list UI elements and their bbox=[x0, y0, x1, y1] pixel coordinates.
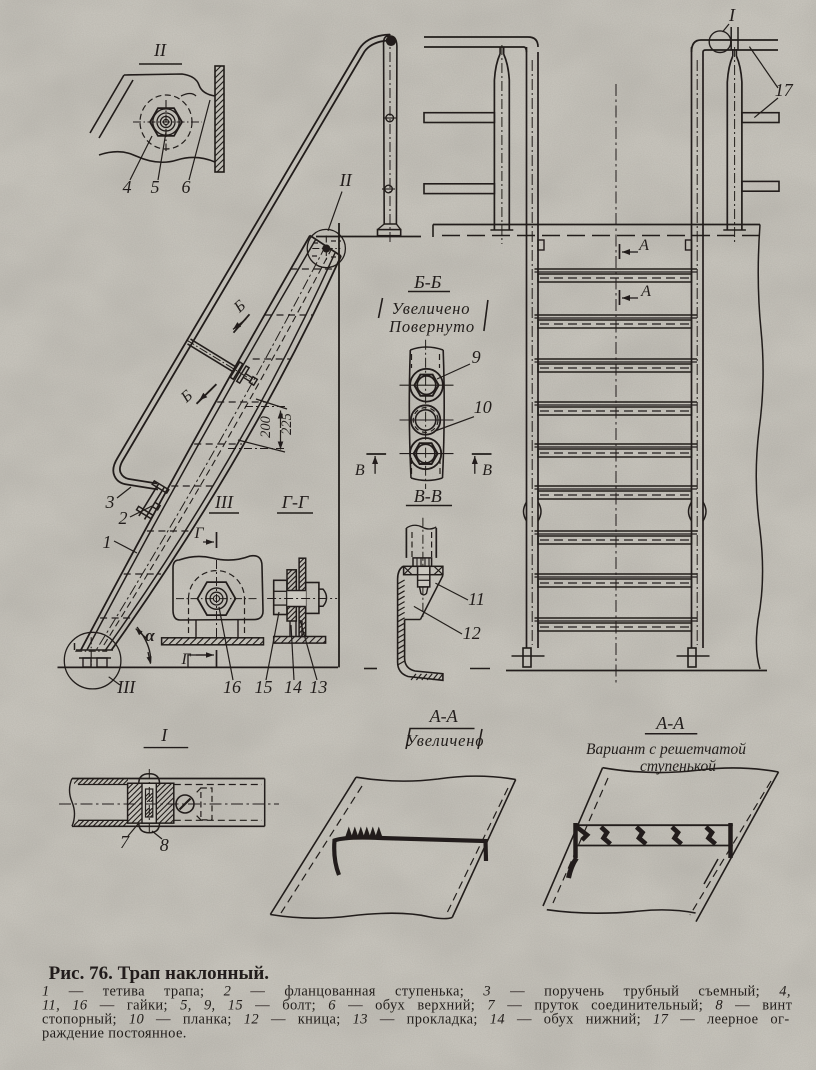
svg-text:А-А: А-А bbox=[429, 706, 459, 726]
svg-text:10: 10 bbox=[474, 397, 492, 417]
svg-text:I: I bbox=[728, 5, 736, 25]
svg-text:Г-Г: Г-Г bbox=[281, 492, 309, 512]
svg-text:12: 12 bbox=[463, 623, 481, 643]
svg-text:II: II bbox=[339, 170, 353, 190]
svg-text:А-А: А-А bbox=[655, 713, 685, 733]
svg-text:Г: Г bbox=[193, 525, 204, 542]
svg-text:1: 1 bbox=[103, 532, 112, 552]
svg-text:11: 11 bbox=[468, 589, 485, 609]
svg-text:Рис. 76. Трап наклонный.: Рис. 76. Трап наклонный. bbox=[49, 963, 269, 984]
svg-text:2: 2 bbox=[119, 508, 128, 528]
svg-text:Повернуто: Повернуто bbox=[388, 317, 475, 336]
svg-text:14: 14 bbox=[284, 677, 302, 697]
svg-text:Увеличено: Увеличено bbox=[392, 299, 471, 318]
svg-text:9: 9 bbox=[472, 347, 481, 367]
svg-text:В: В bbox=[482, 462, 492, 479]
svg-text:Г: Г bbox=[180, 651, 191, 668]
svg-text:II: II bbox=[153, 40, 167, 60]
svg-text:15: 15 bbox=[255, 677, 273, 697]
svg-text:Увеличено: Увеличено bbox=[406, 731, 485, 750]
svg-text:α: α bbox=[145, 626, 155, 645]
svg-text:III: III bbox=[214, 492, 234, 512]
svg-text:200: 200 bbox=[258, 415, 274, 438]
svg-text:225: 225 bbox=[279, 413, 295, 435]
svg-text:3: 3 bbox=[105, 492, 115, 512]
svg-text:А: А bbox=[638, 237, 649, 254]
svg-text:Вариант с решетчатой: Вариант с решетчатой bbox=[586, 741, 746, 758]
svg-text:13: 13 bbox=[309, 677, 327, 697]
svg-text:В: В bbox=[355, 462, 365, 479]
svg-text:III: III bbox=[116, 677, 136, 697]
svg-text:раждение постоянное.: раждение постоянное. bbox=[42, 1026, 187, 1042]
svg-text:I: I bbox=[160, 725, 168, 745]
svg-text:16: 16 bbox=[223, 677, 241, 697]
svg-text:В-В: В-В bbox=[414, 486, 442, 506]
svg-text:Б-Б: Б-Б bbox=[413, 272, 442, 292]
svg-text:А: А bbox=[640, 283, 651, 300]
svg-text:17: 17 bbox=[775, 80, 794, 100]
